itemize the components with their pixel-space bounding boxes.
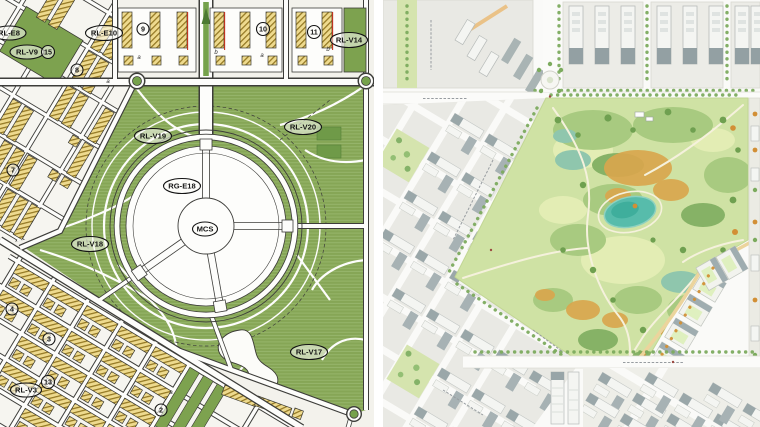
north-blocks — [118, 8, 366, 72]
block-number: 4 — [6, 303, 18, 315]
sports-field — [317, 145, 341, 158]
block-number: 11 — [308, 26, 321, 39]
zone-label: RG-E18 — [164, 179, 201, 194]
block-number: 8 — [71, 64, 83, 76]
block-number: 13 — [42, 376, 55, 389]
svg-text:7: 7 — [11, 166, 15, 175]
svg-text:10: 10 — [259, 25, 267, 34]
svg-text:RL-E8: RL-E8 — [0, 29, 20, 38]
svg-text:2: 2 — [159, 406, 163, 415]
masterplan-comparison: RL-E8 RL-V9 RL-E10 RL-V14 RL-V19 RL-V20 … — [0, 0, 760, 427]
svg-text:8: 8 — [75, 66, 79, 75]
zone-label: RL-V19 — [135, 129, 172, 144]
block-number: 15 — [42, 46, 55, 59]
zone-label: RL-V18 — [72, 237, 109, 252]
zone-label: RL-V3 — [11, 383, 42, 397]
svg-text:13: 13 — [44, 378, 52, 387]
svg-text:RG-E18: RG-E18 — [168, 182, 195, 191]
svg-text:RL-V19: RL-V19 — [140, 132, 166, 141]
svg-text:3: 3 — [47, 335, 51, 344]
svg-text:15: 15 — [44, 48, 52, 57]
svg-text:9: 9 — [141, 25, 145, 34]
zone-label: RL-V17 — [291, 345, 328, 360]
roundabout — [346, 406, 362, 422]
zoning-plan-panel: RL-E8 RL-V9 RL-E10 RL-V14 RL-V19 RL-V20 … — [0, 0, 374, 427]
block-number: 7 — [7, 164, 19, 176]
svg-text:11: 11 — [310, 28, 318, 37]
northwest-blocks — [383, 0, 545, 94]
svg-text:RL-V20: RL-V20 — [290, 123, 316, 132]
zone-label: RL-E8 — [0, 26, 26, 40]
svg-text:RL-V17: RL-V17 — [296, 348, 322, 357]
svg-text:RL-E10: RL-E10 — [91, 29, 117, 38]
svg-text:RL-V9: RL-V9 — [16, 48, 38, 57]
zone-label: MCS — [193, 222, 218, 236]
block-number: 9 — [137, 23, 149, 35]
block-number: 2 — [155, 404, 167, 416]
illustrative-plan-panel — [383, 0, 760, 427]
svg-text:RL-V18: RL-V18 — [77, 240, 103, 249]
illustrative-plan-map — [383, 0, 760, 427]
zone-label: RL-E10 — [86, 26, 123, 41]
block-number: 3 — [43, 333, 55, 345]
roundabout — [358, 73, 375, 90]
svg-text:MCS: MCS — [197, 225, 214, 234]
zone-label: RL-V20 — [285, 120, 322, 135]
panel-divider — [374, 0, 383, 427]
svg-text:RL-V3: RL-V3 — [15, 386, 37, 395]
zone-label: RL-V14 — [331, 33, 368, 48]
block-number: 10 — [257, 23, 270, 36]
roundabout — [129, 73, 146, 90]
zoning-plan-map: RL-E8 RL-V9 RL-E10 RL-V14 RL-V19 RL-V20 … — [0, 0, 374, 427]
svg-text:4: 4 — [10, 305, 14, 314]
zone-label: RL-V9 — [10, 45, 44, 59]
svg-text:RL-V14: RL-V14 — [336, 36, 363, 45]
